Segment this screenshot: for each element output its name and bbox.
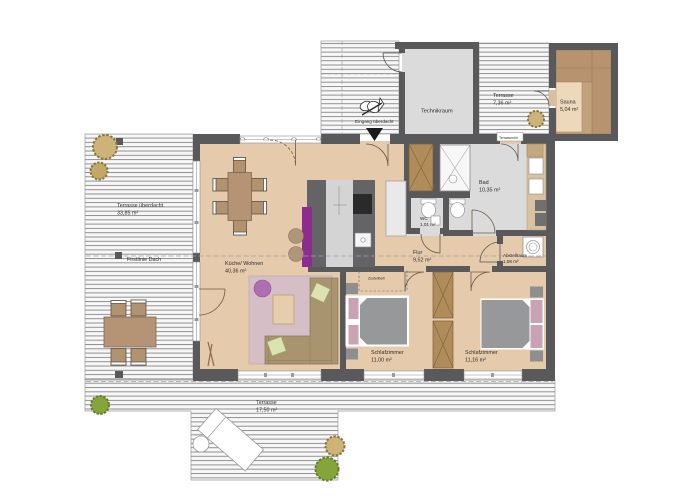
svg-text:Bad: Bad	[479, 180, 489, 186]
svg-text:10,35 m²: 10,35 m²	[479, 188, 500, 194]
svg-text:Terrasse: Terrasse	[256, 400, 277, 406]
svg-text:WC: WC	[420, 216, 428, 221]
svg-text:11,16 m²: 11,16 m²	[465, 358, 486, 364]
svg-text:Terrasse: Terrasse	[493, 93, 514, 99]
svg-text:Eingang überdacht: Eingang überdacht	[355, 119, 394, 124]
svg-text:1,58 m²: 1,58 m²	[503, 259, 519, 264]
svg-text:Firstlinie Dach: Firstlinie Dach	[127, 257, 161, 263]
svg-text:Terrassentür: Terrassentür	[499, 136, 519, 140]
svg-text:Sauna: Sauna	[560, 100, 576, 106]
svg-text:9,52 m²: 9,52 m²	[413, 258, 431, 264]
svg-text:Zustellbett: Zustellbett	[368, 277, 385, 281]
svg-text:Flur: Flur	[413, 250, 422, 256]
svg-text:33,85 m²: 33,85 m²	[117, 211, 138, 217]
svg-text:11,00 m²: 11,00 m²	[371, 358, 392, 364]
svg-text:17,50 m²: 17,50 m²	[256, 408, 277, 414]
svg-text:7,36 m²: 7,36 m²	[493, 101, 511, 107]
svg-text:Schlafzimmer: Schlafzimmer	[371, 350, 404, 356]
svg-text:Terrasse überdacht: Terrasse überdacht	[117, 203, 164, 209]
svg-text:40,36 m²: 40,36 m²	[225, 269, 246, 275]
svg-text:Schlafzimmer: Schlafzimmer	[465, 350, 498, 356]
svg-text:Technikraum: Technikraum	[421, 109, 453, 115]
svg-text:5,04 m²: 5,04 m²	[560, 107, 578, 113]
svg-text:1,01 m²: 1,01 m²	[420, 222, 436, 227]
svg-text:Küche/ Wohnen: Küche/ Wohnen	[225, 261, 263, 267]
svg-text:Abstellraum: Abstellraum	[503, 253, 527, 258]
